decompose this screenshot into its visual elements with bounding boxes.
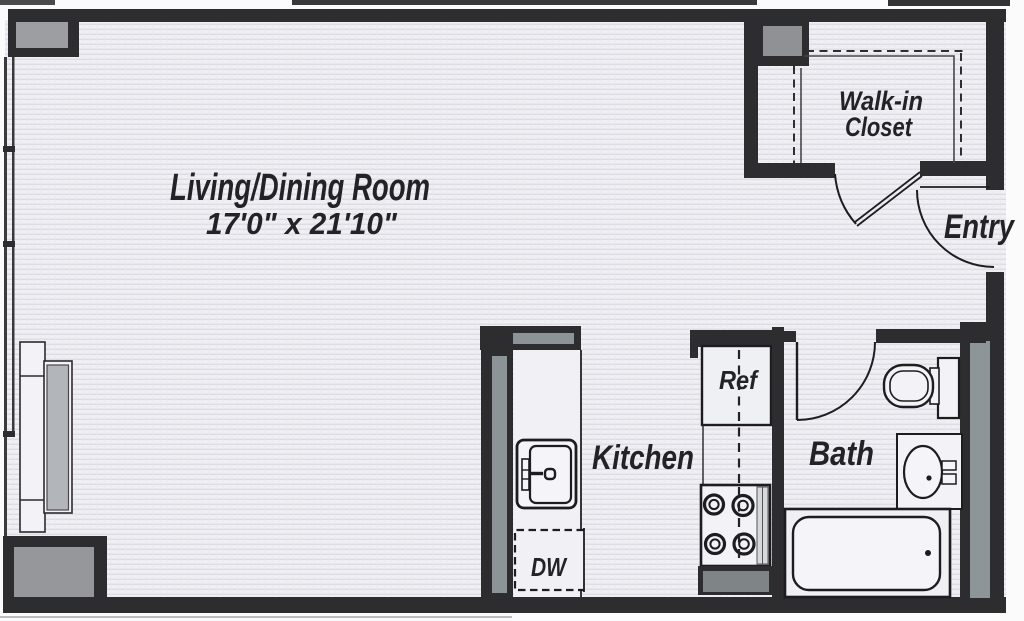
svg-text:Entry: Entry — [944, 208, 1016, 246]
svg-text:Living/Dining Room: Living/Dining Room — [170, 167, 430, 209]
svg-text:17'0" x 21'10": 17'0" x 21'10" — [206, 206, 398, 241]
svg-text:Kitchen: Kitchen — [592, 439, 694, 477]
svg-text:Closet: Closet — [845, 112, 913, 142]
svg-text:DW: DW — [531, 552, 568, 582]
svg-text:Bath: Bath — [809, 435, 874, 473]
